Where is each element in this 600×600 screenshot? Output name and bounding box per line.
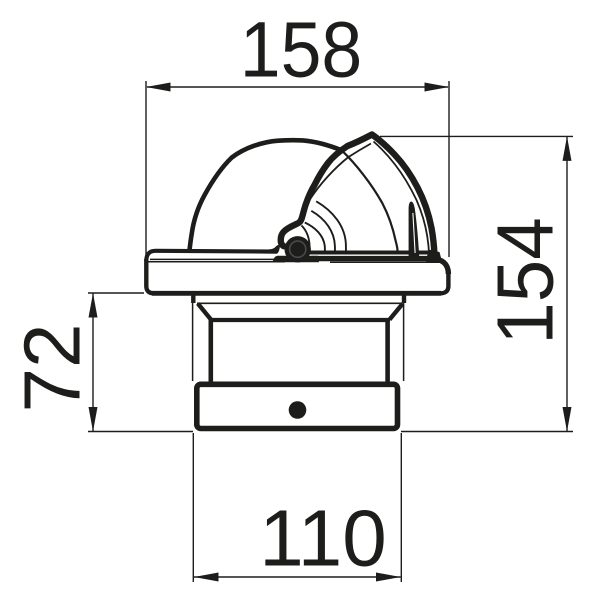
- svg-text:154: 154: [480, 217, 570, 344]
- svg-text:72: 72: [8, 324, 97, 413]
- svg-text:158: 158: [240, 6, 363, 94]
- svg-text:110: 110: [259, 494, 387, 583]
